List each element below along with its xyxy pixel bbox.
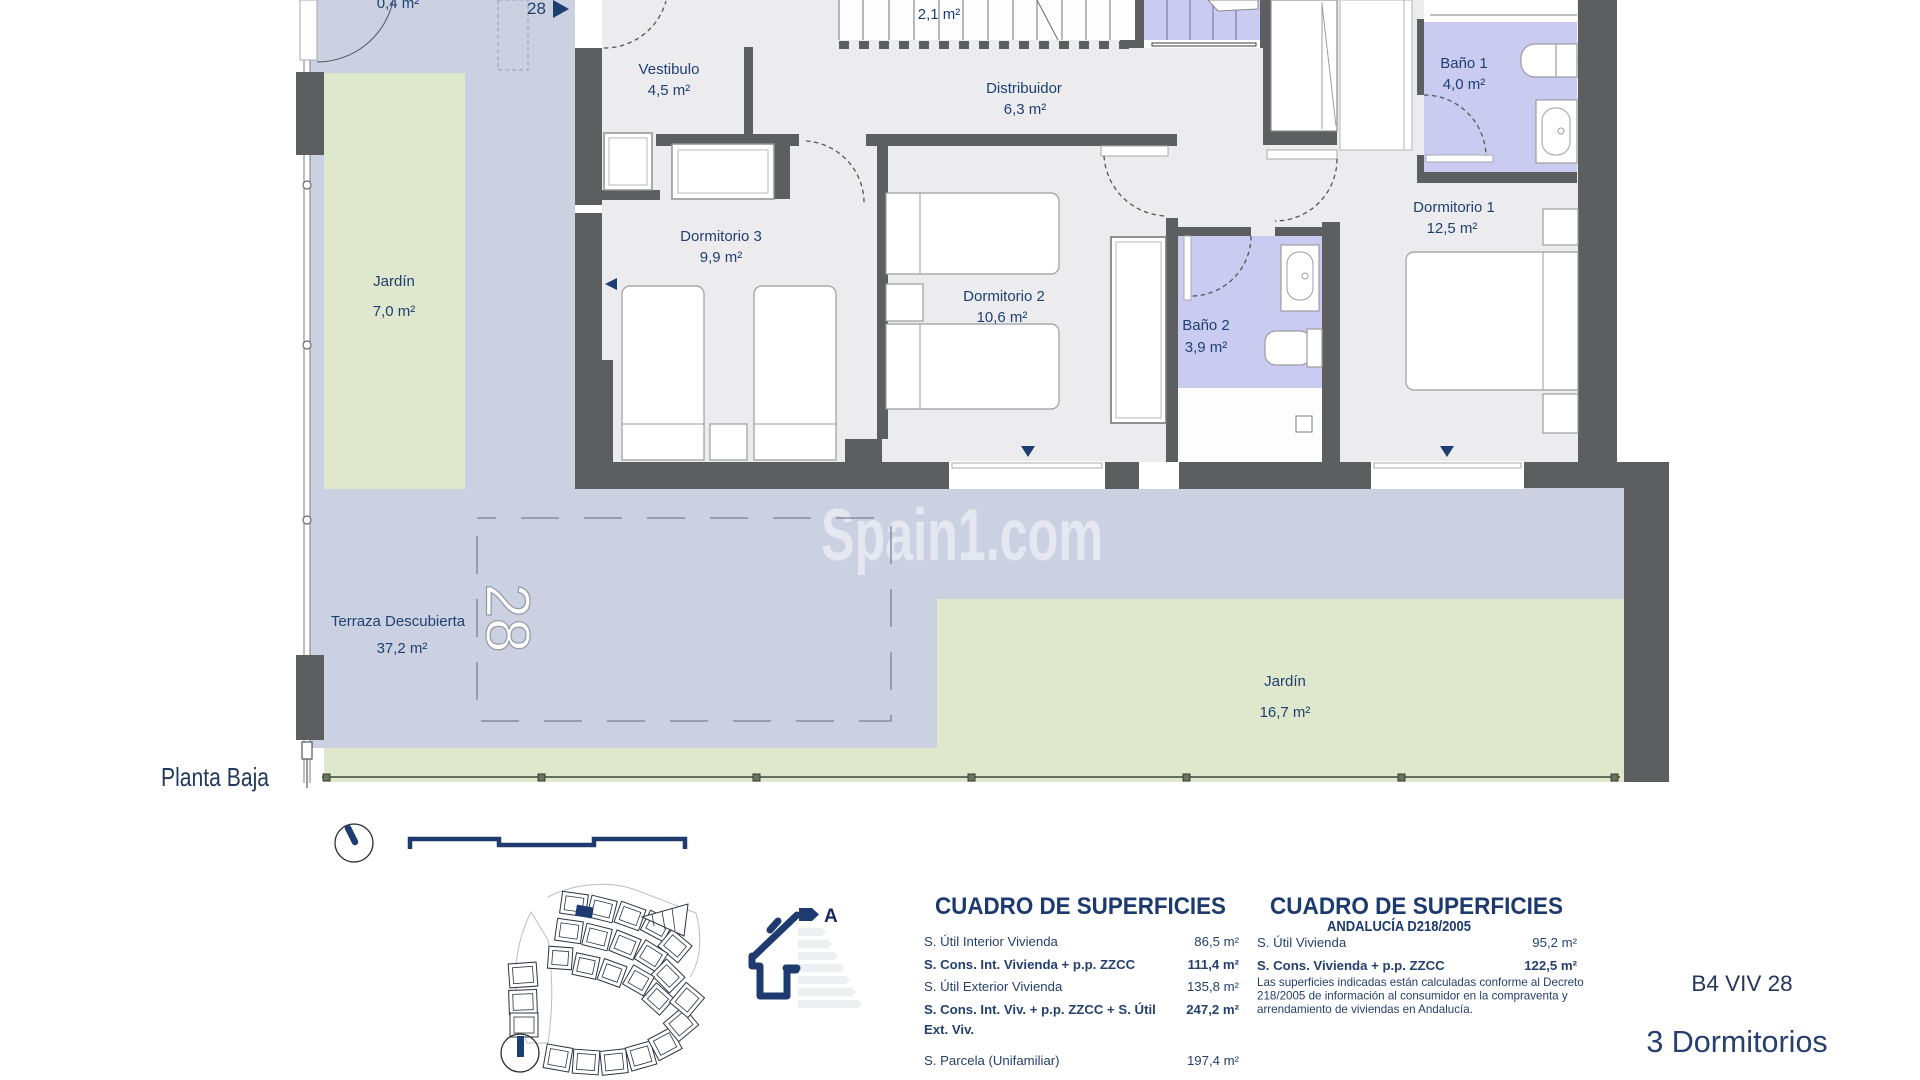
svg-text:Terraza Descubierta: Terraza Descubierta [331, 613, 466, 630]
svg-text:122,5 m²: 122,5 m² [1524, 958, 1577, 973]
svg-text:95,2 m²: 95,2 m² [1532, 935, 1577, 950]
svg-text:10,6 m²: 10,6 m² [977, 309, 1028, 326]
svg-text:28: 28 [473, 584, 542, 653]
svg-text:Distribuidor: Distribuidor [986, 80, 1062, 97]
svg-text:4,5 m²: 4,5 m² [648, 82, 691, 99]
svg-text:247,2 m²: 247,2 m² [1186, 1002, 1239, 1017]
svg-text:Baño 1: Baño 1 [1440, 55, 1488, 72]
svg-text:28: 28 [527, 0, 546, 18]
svg-text:12,5 m²: 12,5 m² [1427, 220, 1478, 237]
svg-text:111,4 m²: 111,4 m² [1188, 957, 1240, 972]
svg-text:ANDALUCÍA D218/2005: ANDALUCÍA D218/2005 [1327, 918, 1471, 935]
svg-text:197,4 m²: 197,4 m² [1187, 1053, 1240, 1068]
svg-text:2,1 m²: 2,1 m² [918, 6, 961, 23]
svg-text:7,0 m²: 7,0 m² [373, 303, 416, 320]
svg-text:86,5 m²: 86,5 m² [1194, 934, 1239, 949]
svg-text:Vestibulo: Vestibulo [639, 61, 700, 78]
svg-text:S. Cons. Int. Vivienda + p.p.: S. Cons. Int. Vivienda + p.p. ZZCC [924, 957, 1136, 972]
svg-text:Ext. Viv.: Ext. Viv. [924, 1022, 974, 1037]
svg-text:S. Útil Exterior Vivienda: S. Útil Exterior Vivienda [924, 979, 1063, 994]
svg-text:Baño 2: Baño 2 [1182, 317, 1230, 334]
svg-text:S. Útil Vivienda: S. Útil Vivienda [1257, 935, 1347, 950]
svg-text:Planta Baja: Planta Baja [161, 762, 269, 792]
svg-text:S. Cons. Int. Viv. + p.p. ZZCC: S. Cons. Int. Viv. + p.p. ZZCC + S. Útil [924, 1002, 1156, 1017]
svg-text:218/2005 de información al con: 218/2005 de información al consumidor en… [1257, 990, 1568, 1003]
svg-text:9,9 m²: 9,9 m² [700, 249, 743, 266]
svg-text:CUADRO DE SUPERFICIES: CUADRO DE SUPERFICIES [1270, 893, 1563, 920]
svg-text:S. Cons. Vivienda + p.p. ZZCC: S. Cons. Vivienda + p.p. ZZCC [1257, 958, 1445, 973]
svg-text:Jardín: Jardín [373, 273, 415, 290]
svg-text:37,2 m²: 37,2 m² [377, 640, 428, 657]
svg-text:CUADRO DE SUPERFICIES: CUADRO DE SUPERFICIES [935, 893, 1226, 920]
svg-text:Spain1.com: Spain1.com [821, 495, 1103, 576]
svg-text:arrendamiento de viviendas en: arrendamiento de viviendas en Andalucía. [1257, 1003, 1473, 1016]
svg-text:S. Útil Interior Vivienda: S. Útil Interior Vivienda [924, 934, 1059, 949]
svg-text:Jardín: Jardín [1264, 673, 1306, 690]
svg-text:0,4 m²: 0,4 m² [377, 0, 420, 12]
svg-text:3,9 m²: 3,9 m² [1185, 339, 1228, 356]
svg-text:Dormitorio 2: Dormitorio 2 [963, 288, 1045, 305]
svg-text:6,3 m²: 6,3 m² [1004, 101, 1047, 118]
svg-text:A: A [824, 906, 838, 927]
svg-text:Dormitorio 1: Dormitorio 1 [1413, 199, 1495, 216]
svg-text:135,8 m²: 135,8 m² [1187, 979, 1240, 994]
svg-text:3 Dormitorios: 3 Dormitorios [1646, 1025, 1827, 1059]
svg-text:Dormitorio 3: Dormitorio 3 [680, 228, 762, 245]
svg-text:16,7 m²: 16,7 m² [1260, 704, 1311, 721]
svg-text:B4 VIV 28: B4 VIV 28 [1691, 971, 1792, 996]
svg-text:4,0 m²: 4,0 m² [1443, 76, 1486, 93]
svg-text:S. Parcela (Unifamiliar): S. Parcela (Unifamiliar) [924, 1053, 1060, 1068]
svg-text:Las superficies indicadas está: Las superficies indicadas están calculad… [1257, 976, 1584, 989]
